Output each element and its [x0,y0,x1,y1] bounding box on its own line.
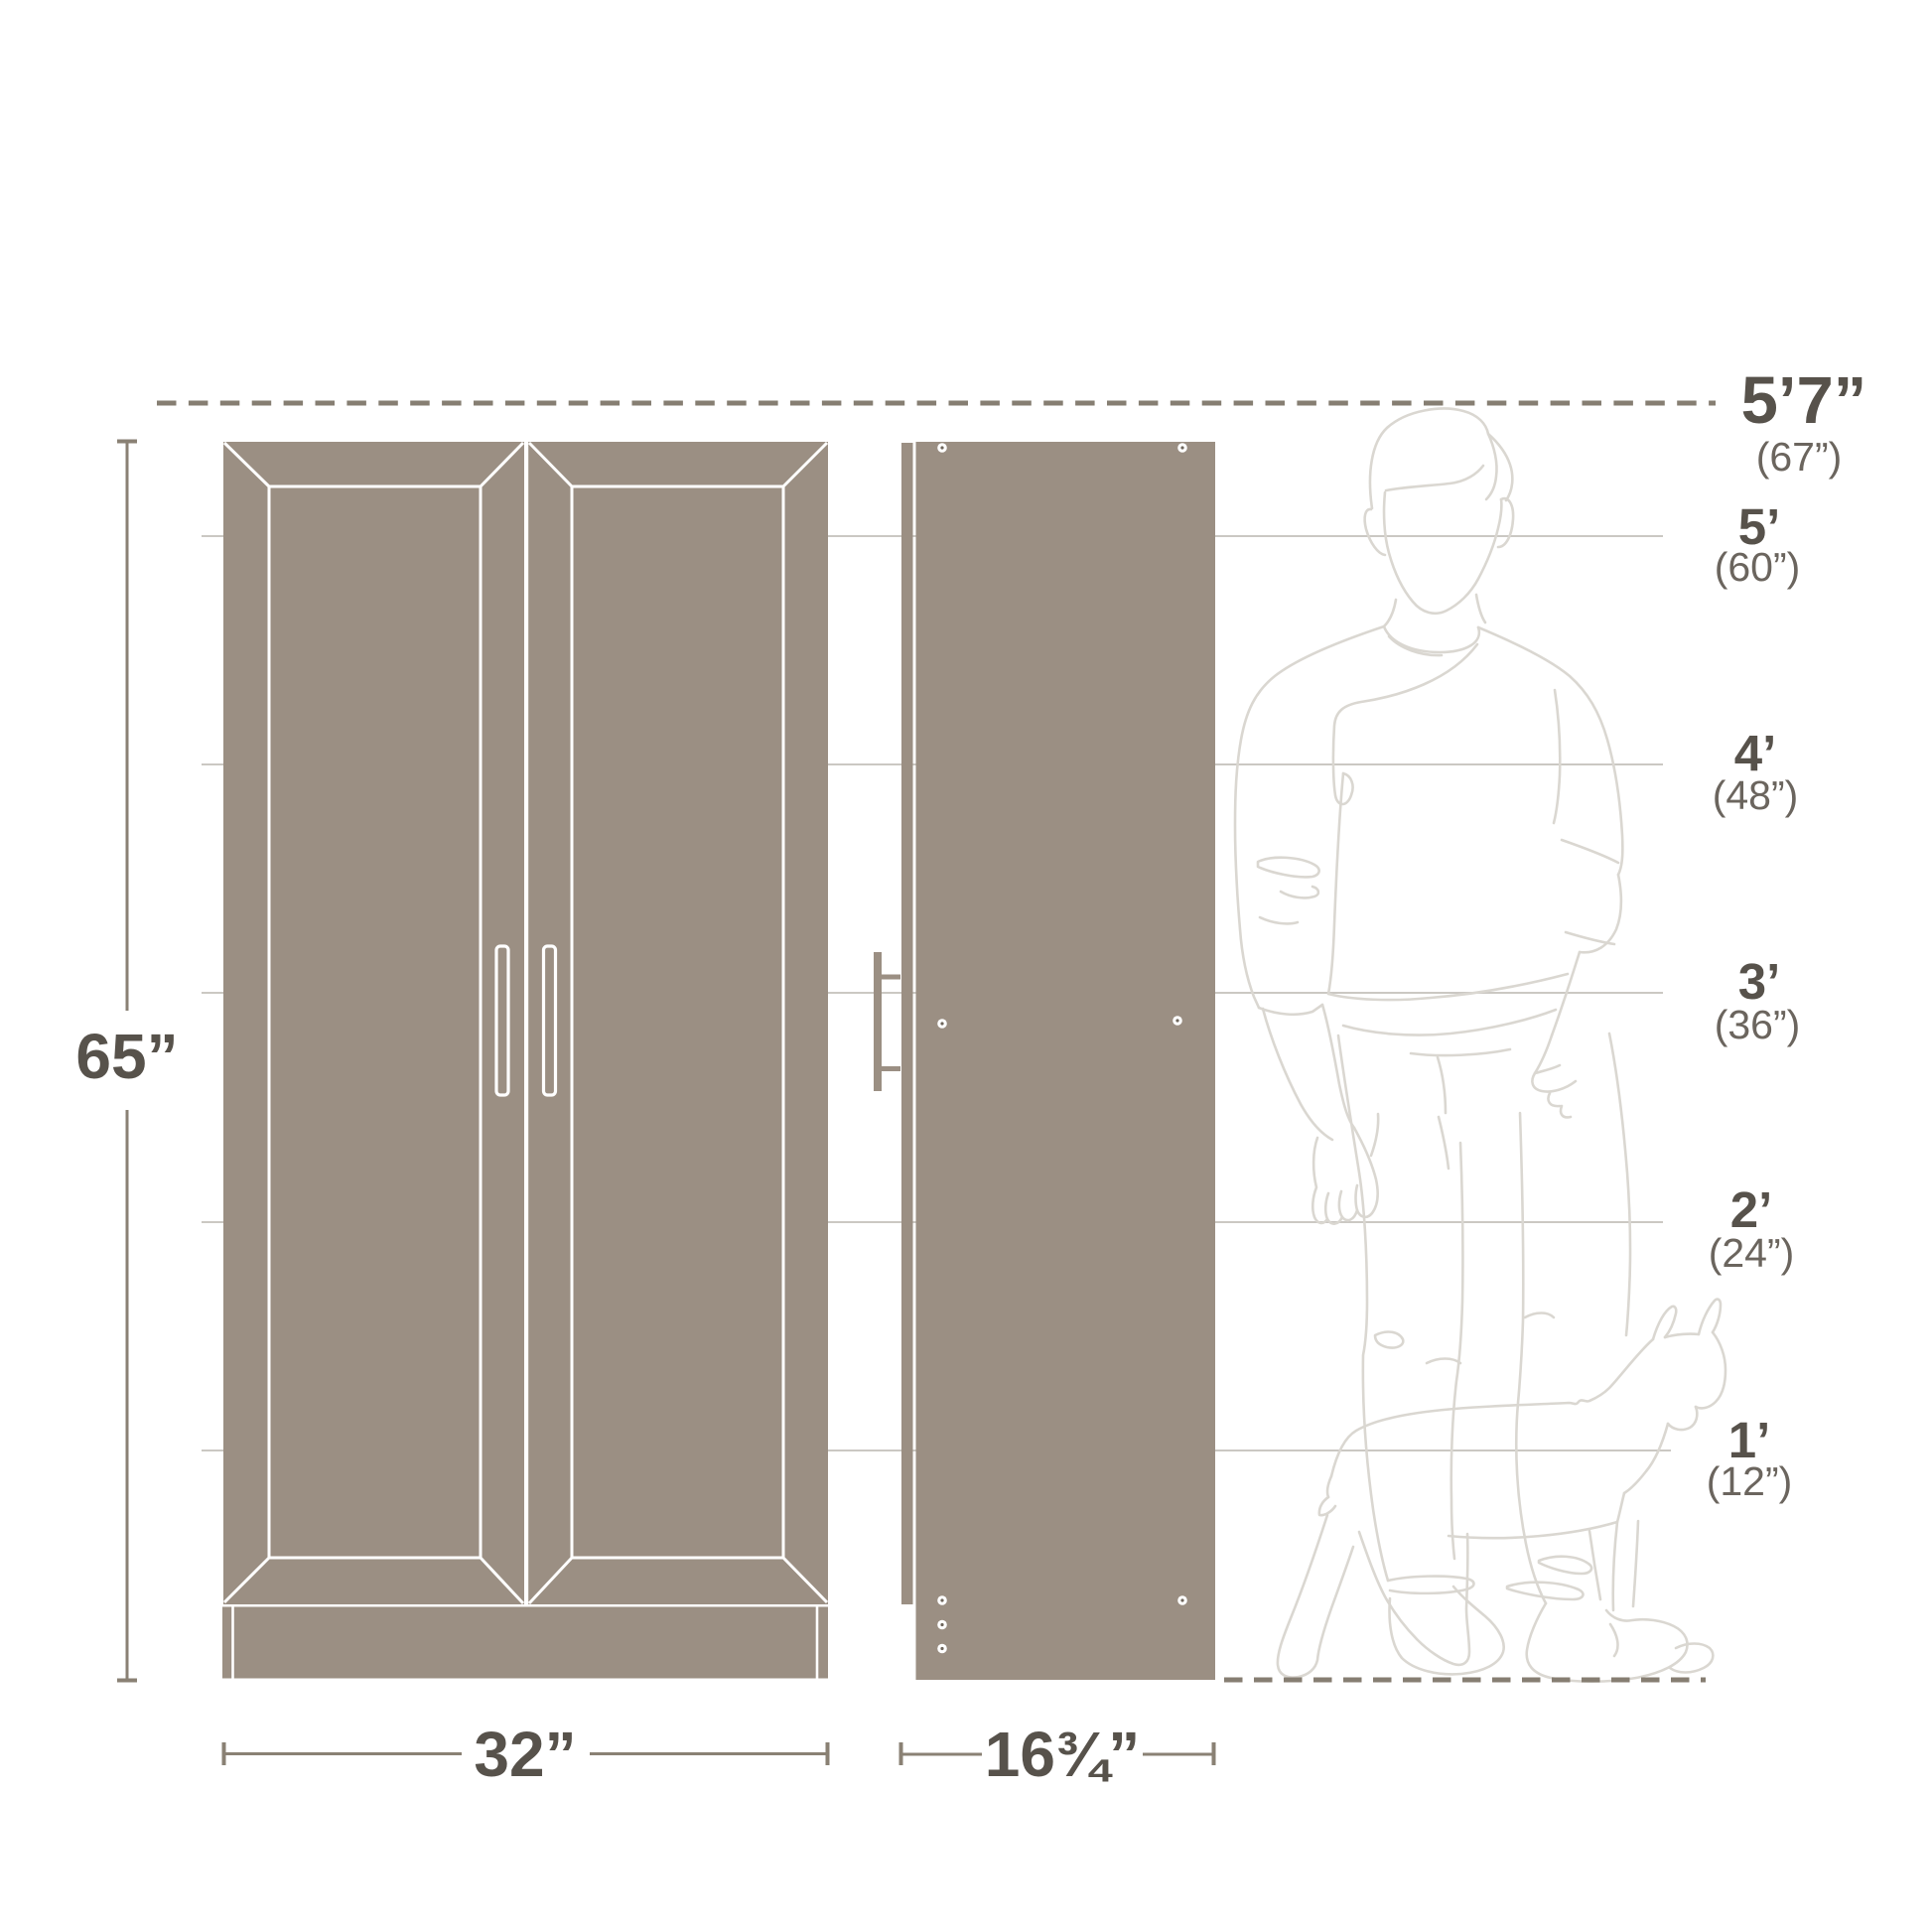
svg-text:(24”): (24”) [1709,1230,1795,1276]
svg-text:(48”): (48”) [1713,772,1799,818]
svg-text:(36”): (36”) [1715,1002,1801,1047]
svg-text:16¾”: 16¾” [985,1719,1141,1790]
svg-text:(67”): (67”) [1756,434,1843,480]
svg-text:5’7”: 5’7” [1741,363,1867,438]
svg-text:32”: 32” [474,1719,576,1790]
svg-text:(60”): (60”) [1715,544,1801,590]
svg-text:65”: 65” [75,1021,178,1092]
svg-text:(12”): (12”) [1707,1458,1793,1504]
